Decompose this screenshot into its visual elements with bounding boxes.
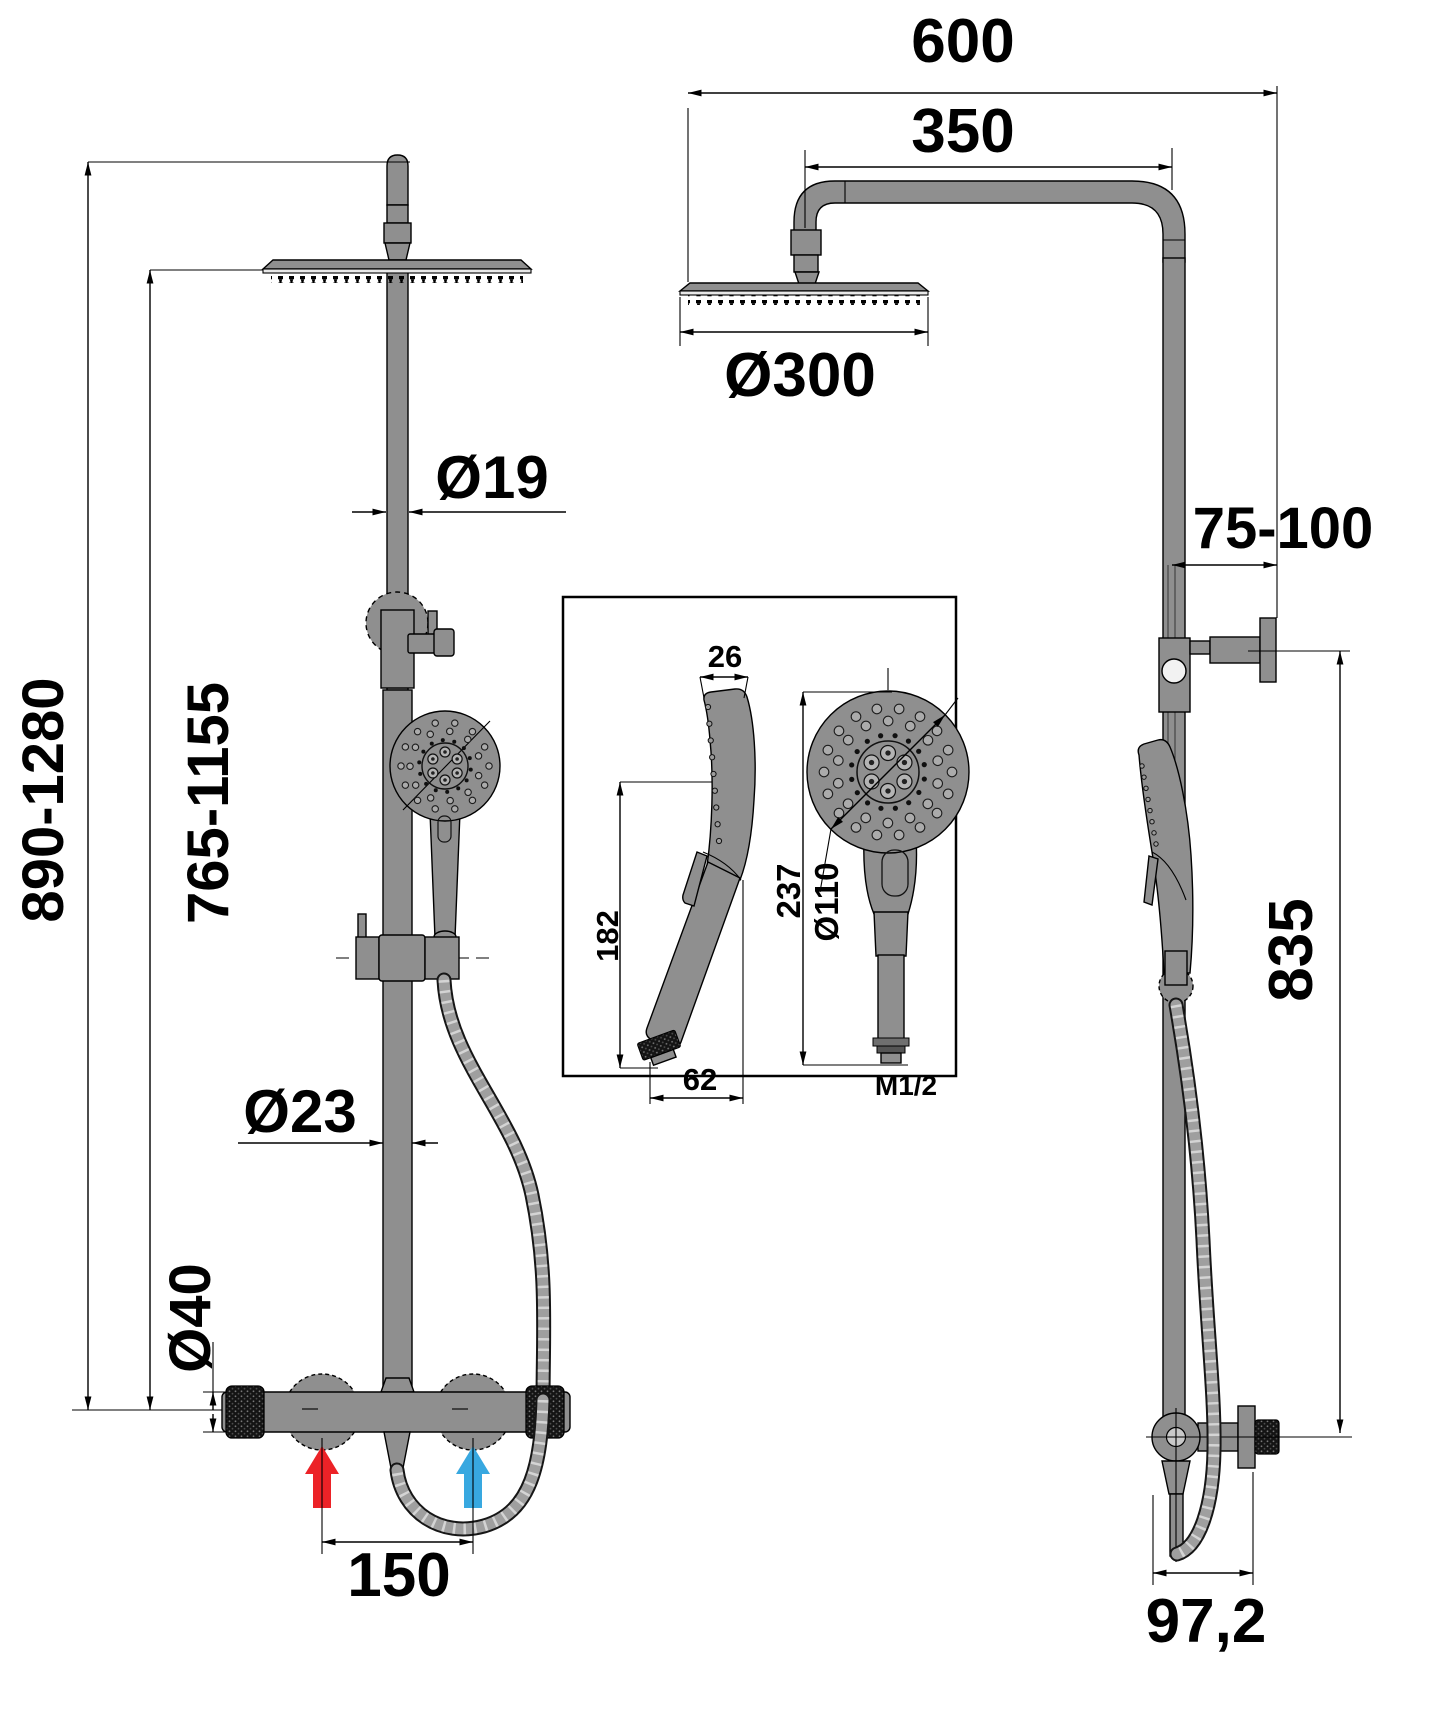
nozzle-dot <box>915 712 925 722</box>
nozzle-dot <box>465 789 471 795</box>
nozzle-dot <box>894 830 904 840</box>
shower-arm <box>794 181 1185 262</box>
hose-front <box>444 980 544 1404</box>
nozzle-dot <box>710 755 715 760</box>
nozzle-dot <box>878 733 883 738</box>
nozzle-dot <box>412 782 418 788</box>
nozzle-dot <box>414 797 420 803</box>
nozzle-dot <box>861 813 871 823</box>
nozzle-dot <box>452 806 458 812</box>
nozzle-dot <box>902 779 907 784</box>
nozzle-dot <box>861 721 871 731</box>
nozzle-dot <box>883 818 893 828</box>
nozzle-dot <box>447 797 453 803</box>
rain-head-side <box>680 283 928 305</box>
nozzle-dot <box>947 767 957 777</box>
slider-left-block <box>356 937 379 979</box>
nozzle-dot <box>430 742 434 746</box>
nozzle-dot <box>469 768 473 772</box>
nozzle-dot <box>445 790 449 794</box>
nozzle-dot <box>943 745 953 755</box>
arm-cone <box>795 272 819 284</box>
nozzle-dot <box>916 790 921 795</box>
nozzle-dot <box>1140 764 1144 768</box>
nozzle-dot <box>443 750 447 754</box>
nozzle-dot <box>712 788 717 793</box>
nozzle-dot <box>465 736 471 742</box>
nozzle-dot <box>915 823 925 833</box>
nozzle-dot <box>855 790 860 795</box>
rail-top-cone <box>385 243 410 260</box>
dim-total-length: 237 <box>770 863 807 918</box>
nozzle-dot <box>481 744 487 750</box>
nozzle-dot <box>424 782 428 786</box>
nozzle-dot <box>843 799 853 809</box>
nozzle-dot <box>932 726 942 736</box>
drawing-canvas: 890-1280 765-1155 Ø19 Ø23 Ø40 150 <box>0 0 1452 1724</box>
nozzle-dot <box>906 739 911 744</box>
nozzle-dot <box>475 753 481 759</box>
overhead-arm-view: 600 350 Ø300 <box>680 7 1277 618</box>
nozzle-dot <box>922 762 927 767</box>
nozzle-dot <box>865 800 870 805</box>
dim-total-reach: 600 <box>911 7 1014 76</box>
nozzle-dot <box>1152 831 1156 835</box>
nozzle-dot <box>481 782 487 788</box>
nozzle-dot <box>708 738 713 743</box>
nozzle-dot <box>469 797 475 803</box>
nozzle-dot <box>443 778 447 782</box>
dim-head-thickness: 26 <box>708 639 742 674</box>
nozzle-dot <box>707 721 712 726</box>
nozzle-dot <box>1142 775 1146 779</box>
slider-bracket-front <box>336 914 494 981</box>
nozzle-dot <box>465 778 469 782</box>
nozzle-dot <box>843 735 853 745</box>
nozzle-dot <box>432 720 438 726</box>
nozzle-dot <box>885 788 890 793</box>
nozzle-dot <box>869 760 874 765</box>
nozzle-dot <box>469 728 475 734</box>
nozzle-dot <box>434 788 438 792</box>
nozzle-dot <box>418 772 422 776</box>
mixer-valve <box>222 1374 570 1468</box>
nozzle-dot <box>441 738 445 742</box>
rain-head-nozzles <box>271 273 523 283</box>
nozzle-dot <box>834 808 844 818</box>
dim-bracket-outlet: 835 <box>1257 898 1326 1001</box>
nozzle-dot <box>905 721 915 731</box>
nozzle-dot <box>407 763 413 769</box>
nozzle-dot <box>486 763 492 769</box>
nozzle-dot <box>872 704 882 714</box>
nozzle-dot <box>455 757 459 761</box>
slider-holder <box>425 937 459 979</box>
valve-body <box>222 1392 570 1432</box>
nozzle-dot <box>855 749 860 754</box>
nozzle-dot <box>922 776 927 781</box>
nozzle-dot <box>883 716 893 726</box>
nozzle-dot <box>456 786 460 790</box>
nozzle-dot <box>431 757 435 761</box>
side-bracket-arm <box>1190 641 1210 654</box>
nozzle-dot <box>452 740 456 744</box>
rain-head-front <box>263 260 531 283</box>
rain-head-nozzles-side <box>688 295 920 305</box>
nozzle-dot <box>823 745 833 755</box>
nozzle-dot <box>916 749 921 754</box>
nozzle-dot <box>432 806 438 812</box>
nozzle-dot <box>462 746 466 750</box>
nozzle-dot <box>923 799 933 809</box>
nozzle-dot <box>849 777 854 782</box>
nozzle-dot <box>475 772 481 778</box>
slider-lever <box>358 914 366 939</box>
nozzle-dot <box>851 712 861 722</box>
overhead-dimensions: 600 350 Ø300 <box>680 7 1277 618</box>
dim-arm-length: 350 <box>911 97 1014 166</box>
arm-collar <box>791 230 821 255</box>
dim-valve-diameter: Ø40 <box>158 1263 223 1373</box>
outlet-elbow <box>1146 1406 1352 1562</box>
nozzle-dot <box>823 789 833 799</box>
nozzle-dot <box>932 808 942 818</box>
nozzle-dot <box>885 750 890 755</box>
nozzle-dot <box>834 756 844 766</box>
nozzle-dot <box>833 778 843 788</box>
nozzle-dot <box>869 779 874 784</box>
nozzle-dot <box>905 813 915 823</box>
nozzle-dot <box>715 822 720 827</box>
side-view: 75-100 835 97,2 <box>1138 258 1373 1656</box>
handset-thread <box>881 1053 901 1063</box>
nozzle-dot <box>933 756 943 766</box>
nozzle-dot <box>1148 808 1152 812</box>
hook-block <box>434 629 454 656</box>
front-view: 890-1280 765-1155 Ø19 Ø23 Ø40 150 <box>11 155 570 1610</box>
dim-lower-rail: Ø23 <box>243 1078 356 1145</box>
nozzle-dot <box>865 739 870 744</box>
side-bracket-arm-thick <box>1210 637 1260 663</box>
dim-thread-size: M1/2 <box>875 1070 937 1101</box>
hand-shower-detail: 26 182 62 237 Ø110 M1/2 <box>563 597 969 1104</box>
dim-overall-height: 890-1280 <box>11 677 76 922</box>
dim-face-diameter: Ø110 <box>808 863 845 942</box>
dim-head-diameter: Ø300 <box>724 341 876 410</box>
nozzle-dot <box>714 805 719 810</box>
nozzle-dot <box>711 771 716 776</box>
dim-head-height: 765-1155 <box>176 682 241 924</box>
nozzle-dot <box>892 733 897 738</box>
nozzle-dot <box>1146 797 1150 801</box>
nozzle-dot <box>943 789 953 799</box>
nozzle-dot <box>878 806 883 811</box>
nozzle-dot <box>452 720 458 726</box>
slider-clamp <box>379 935 425 981</box>
nozzle-dot <box>716 838 721 843</box>
rail-top-ring <box>387 205 408 223</box>
nozzle-dot <box>402 782 408 788</box>
nozzle-dot <box>819 767 829 777</box>
nozzle-dot <box>1154 842 1158 846</box>
nozzle-dot <box>705 704 710 709</box>
nozzle-dot <box>872 830 882 840</box>
nozzle-dot <box>421 750 425 754</box>
nozzle-dot <box>447 728 453 734</box>
nozzle-dot <box>933 779 943 789</box>
nozzle-dot <box>417 760 421 764</box>
nozzle-dot <box>398 763 404 769</box>
dim-wall-clearance: 75-100 <box>1193 496 1374 561</box>
nozzle-dot <box>402 744 408 750</box>
nozzle-dot <box>1144 786 1148 790</box>
technical-drawing: 890-1280 765-1155 Ø19 Ø23 Ø40 150 <box>0 0 1452 1724</box>
left-valve-knob <box>226 1386 264 1438</box>
dim-inlet-spacing: 150 <box>347 1541 450 1610</box>
nozzle-dot <box>414 728 420 734</box>
nozzle-dot <box>834 726 844 736</box>
nozzle-dot <box>902 760 907 765</box>
nozzle-dot <box>427 795 433 801</box>
dim-upper-rail: Ø19 <box>435 444 548 511</box>
nozzle-dot <box>427 731 433 737</box>
side-wall-plate <box>1260 618 1276 682</box>
nozzle-dot <box>849 762 854 767</box>
dim-head-reach: 62 <box>683 1062 717 1097</box>
nozzle-dot <box>851 823 861 833</box>
nozzle-dot <box>1150 820 1154 824</box>
nozzle-dot <box>893 806 898 811</box>
nozzle-dot <box>923 736 933 746</box>
hand-shower-handle <box>430 812 460 938</box>
side-bracket-knob <box>1162 659 1186 683</box>
dim-grip-length: 182 <box>590 910 625 962</box>
rail-valve-flare <box>381 1378 414 1392</box>
dim-hose-offset: 97,2 <box>1146 1587 1267 1656</box>
nozzle-dot <box>431 771 435 775</box>
nozzle-dot <box>468 756 472 760</box>
nozzle-dot <box>894 704 904 714</box>
nozzle-dot <box>455 771 459 775</box>
upper-wall-bracket <box>366 592 454 688</box>
nozzle-dot <box>412 744 418 750</box>
arm-ring <box>794 255 818 272</box>
handset-stem <box>878 955 904 1040</box>
nozzle-dot <box>906 800 911 805</box>
rail-top-collar <box>384 223 411 243</box>
